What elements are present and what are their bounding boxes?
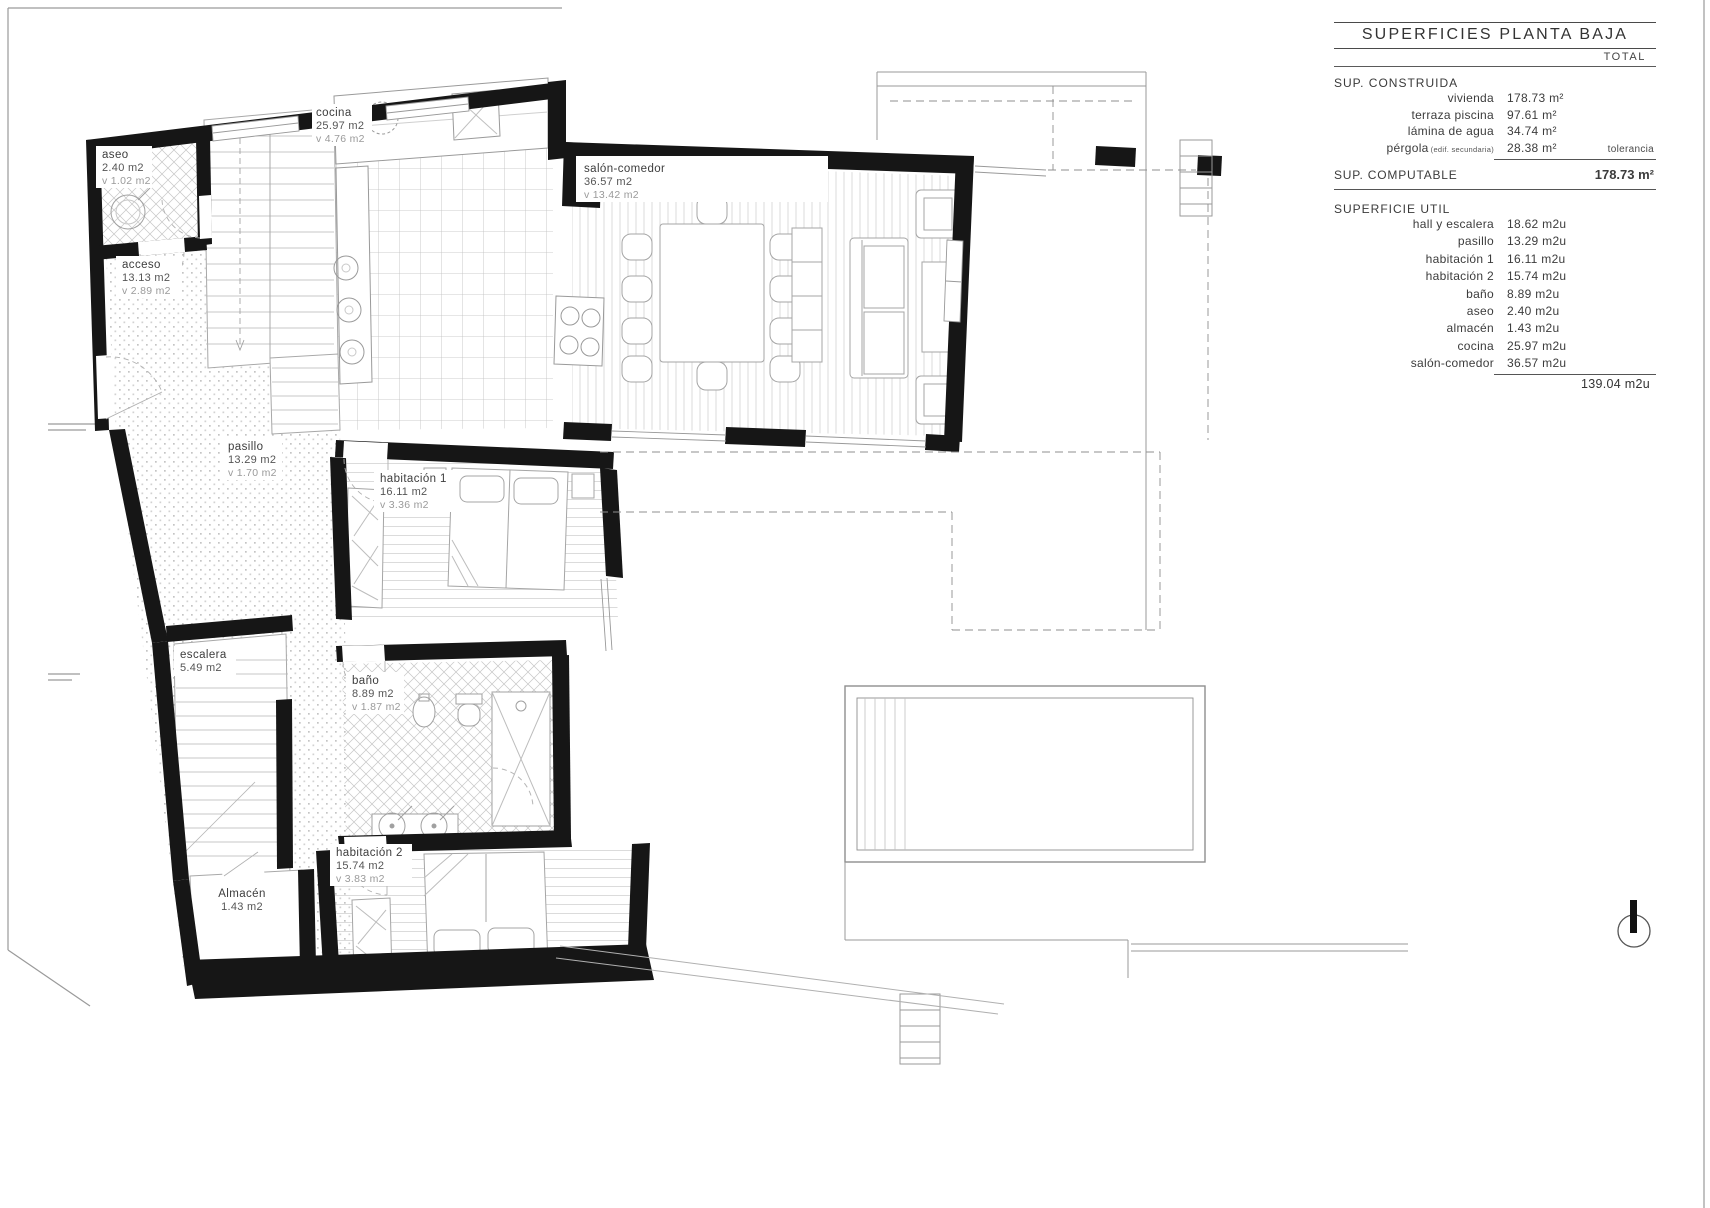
svg-text:1.43 m2: 1.43 m2 <box>221 901 263 913</box>
svg-text:v 1.02 m2: v 1.02 m2 <box>102 175 151 187</box>
table-row: pasillo13.29 m2u <box>1334 233 1656 250</box>
nightstand <box>572 474 594 498</box>
svg-text:v 4.76 m2: v 4.76 m2 <box>316 133 365 145</box>
table-row: salón-comedor36.57 m2u <box>1334 355 1656 372</box>
room-label-pasillo: pasillo <box>228 441 263 453</box>
computable-value: 178.73 m² <box>1458 167 1656 182</box>
pillow <box>514 478 558 504</box>
north-arrow-icon <box>1618 900 1650 947</box>
row-value: 15.74 m2u <box>1507 268 1566 285</box>
table-rule <box>1334 66 1656 67</box>
table-row: habitación 116.11 m2u <box>1334 251 1656 268</box>
svg-text:15.74 m2: 15.74 m2 <box>336 860 384 872</box>
svg-text:25.97 m2: 25.97 m2 <box>316 120 364 132</box>
svg-text:v 13.42 m2: v 13.42 m2 <box>584 189 639 201</box>
room-label-aseo: aseo <box>102 149 129 161</box>
table-row: pérgola(edif. secundaria) 28.38 m² toler… <box>1334 140 1656 159</box>
deck-lines <box>556 862 1408 1064</box>
row-label: cocina <box>1334 338 1494 355</box>
dining-table <box>660 224 764 362</box>
svg-text:2.40 m2: 2.40 m2 <box>102 162 144 174</box>
toilet <box>458 704 480 726</box>
chair <box>622 276 652 302</box>
table-row: aseo2.40 m2u <box>1334 303 1656 320</box>
row-value: 18.62 m2u <box>1507 216 1566 233</box>
chair <box>622 356 652 382</box>
row-label: aseo <box>1334 303 1494 320</box>
row-label: vivienda <box>1334 90 1494 107</box>
room-label-bano: baño <box>352 675 379 687</box>
construida-section-label: SUP. CONSTRUIDA <box>1334 76 1656 90</box>
row-label: habitación 1 <box>1334 251 1494 268</box>
svg-text:16.11 m2: 16.11 m2 <box>380 486 427 498</box>
room-label-acceso: acceso <box>122 259 161 271</box>
row-value: 16.11 m2u <box>1507 251 1566 268</box>
room-label-hab2: habitación 2 <box>336 847 403 859</box>
row-label: baño <box>1334 286 1494 303</box>
room-label-escalera: escalera <box>180 649 227 661</box>
row-value: 28.38 m² <box>1507 140 1557 157</box>
row-value: 178.73 m² <box>1507 90 1564 107</box>
row-label: pasillo <box>1334 233 1494 250</box>
row-label: lámina de agua <box>1334 123 1494 140</box>
svg-text:8.89 m2: 8.89 m2 <box>352 688 394 700</box>
util-section: SUPERFICIE UTIL hall y escalera18.62 m2u… <box>1334 202 1656 394</box>
util-total-value: 139.04 m2u <box>1334 375 1656 394</box>
pool-steps <box>865 698 905 850</box>
table-row: almacén1.43 m2u <box>1334 320 1656 337</box>
svg-text:v 1.87 m2: v 1.87 m2 <box>352 701 401 713</box>
sideboard <box>792 228 822 362</box>
room-label-almacen: Almacén <box>218 888 266 900</box>
pillow <box>460 476 504 502</box>
table-row: terraza piscina 97.61 m² <box>1334 107 1656 124</box>
chair <box>622 318 652 344</box>
cooktop <box>554 296 604 366</box>
row-value: 34.74 m² <box>1507 123 1557 140</box>
row-label: habitación 2 <box>1334 268 1494 285</box>
table-row: habitación 215.74 m2u <box>1334 268 1656 285</box>
chair <box>622 234 652 260</box>
row-label: terraza piscina <box>1334 107 1494 124</box>
table-row: lámina de agua 34.74 m² <box>1334 123 1656 140</box>
table-row: hall y escalera18.62 m2u <box>1334 216 1656 233</box>
svg-text:v 3.83 m2: v 3.83 m2 <box>336 873 385 885</box>
svg-text:13.29 m2: 13.29 m2 <box>228 454 276 466</box>
pool-outer <box>845 686 1205 862</box>
chair <box>697 362 727 390</box>
tolerance-note: tolerancia <box>1608 142 1654 159</box>
pool <box>845 686 1205 862</box>
pool-inner <box>857 698 1193 850</box>
util-section-label: SUPERFICIE UTIL <box>1334 202 1656 216</box>
svg-text:36.57 m2: 36.57 m2 <box>584 176 632 188</box>
room-label-hab1: habitación 1 <box>380 473 447 485</box>
toilet-tank <box>456 694 482 704</box>
row-label: pérgola(edif. secundaria) <box>1334 140 1494 159</box>
row-note: (edif. secundaria) <box>1431 145 1494 154</box>
table-rule <box>1494 159 1656 160</box>
row-value: 2.40 m2u <box>1507 303 1559 320</box>
room-label-salon: salón-comedor <box>584 163 665 175</box>
row-value: 25.97 m2u <box>1507 338 1566 355</box>
row-value: 97.61 m² <box>1507 107 1557 124</box>
table-row: cocina25.97 m2u <box>1334 338 1656 355</box>
row-value: 36.57 m2u <box>1507 355 1566 372</box>
surfaces-table: SUPERFICIES PLANTA BAJA TOTAL SUP. CONST… <box>1334 22 1656 394</box>
table-rule <box>1334 189 1656 190</box>
kitchen-island <box>336 166 372 384</box>
row-value: 13.29 m2u <box>1507 233 1566 250</box>
total-column-header: TOTAL <box>1334 49 1656 66</box>
table-title: SUPERFICIES PLANTA BAJA <box>1334 23 1656 48</box>
computable-row: SUP. COMPUTABLE 178.73 m² <box>1334 167 1656 182</box>
row-value: 1.43 m2u <box>1507 320 1559 337</box>
floorplan-sheet: { "table": { "title": "SUPERFICIES PLANT… <box>0 0 1710 1208</box>
row-label: hall y escalera <box>1334 216 1494 233</box>
svg-text:v 2.89 m2: v 2.89 m2 <box>122 285 171 297</box>
room-label-cocina: cocina <box>316 107 352 119</box>
svg-text:v 1.70 m2: v 1.70 m2 <box>228 467 277 479</box>
row-value: 8.89 m2u <box>1507 286 1559 303</box>
table-row: vivienda 178.73 m² <box>1334 90 1656 107</box>
row-label: salón-comedor <box>1334 355 1494 372</box>
table-row: baño8.89 m2u <box>1334 286 1656 303</box>
computable-label: SUP. COMPUTABLE <box>1334 168 1458 182</box>
svg-text:5.49 m2: 5.49 m2 <box>180 662 222 674</box>
row-label: almacén <box>1334 320 1494 337</box>
svg-text:v 3.36 m2: v 3.36 m2 <box>380 499 429 511</box>
svg-text:13.13 m2: 13.13 m2 <box>122 272 170 284</box>
